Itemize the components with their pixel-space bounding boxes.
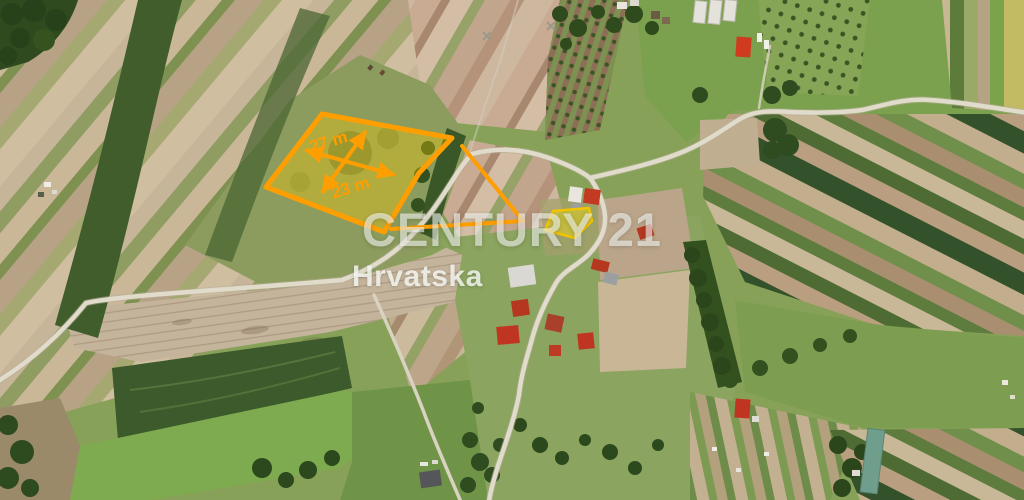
parcel-outline	[266, 114, 452, 232]
parcel-annotation-layer: 27 m 23 m	[0, 0, 1024, 500]
satellite-listing-image: 27 m 23 m CENTURY 21 Hrvatska	[0, 0, 1024, 500]
location-highlight	[545, 208, 592, 238]
